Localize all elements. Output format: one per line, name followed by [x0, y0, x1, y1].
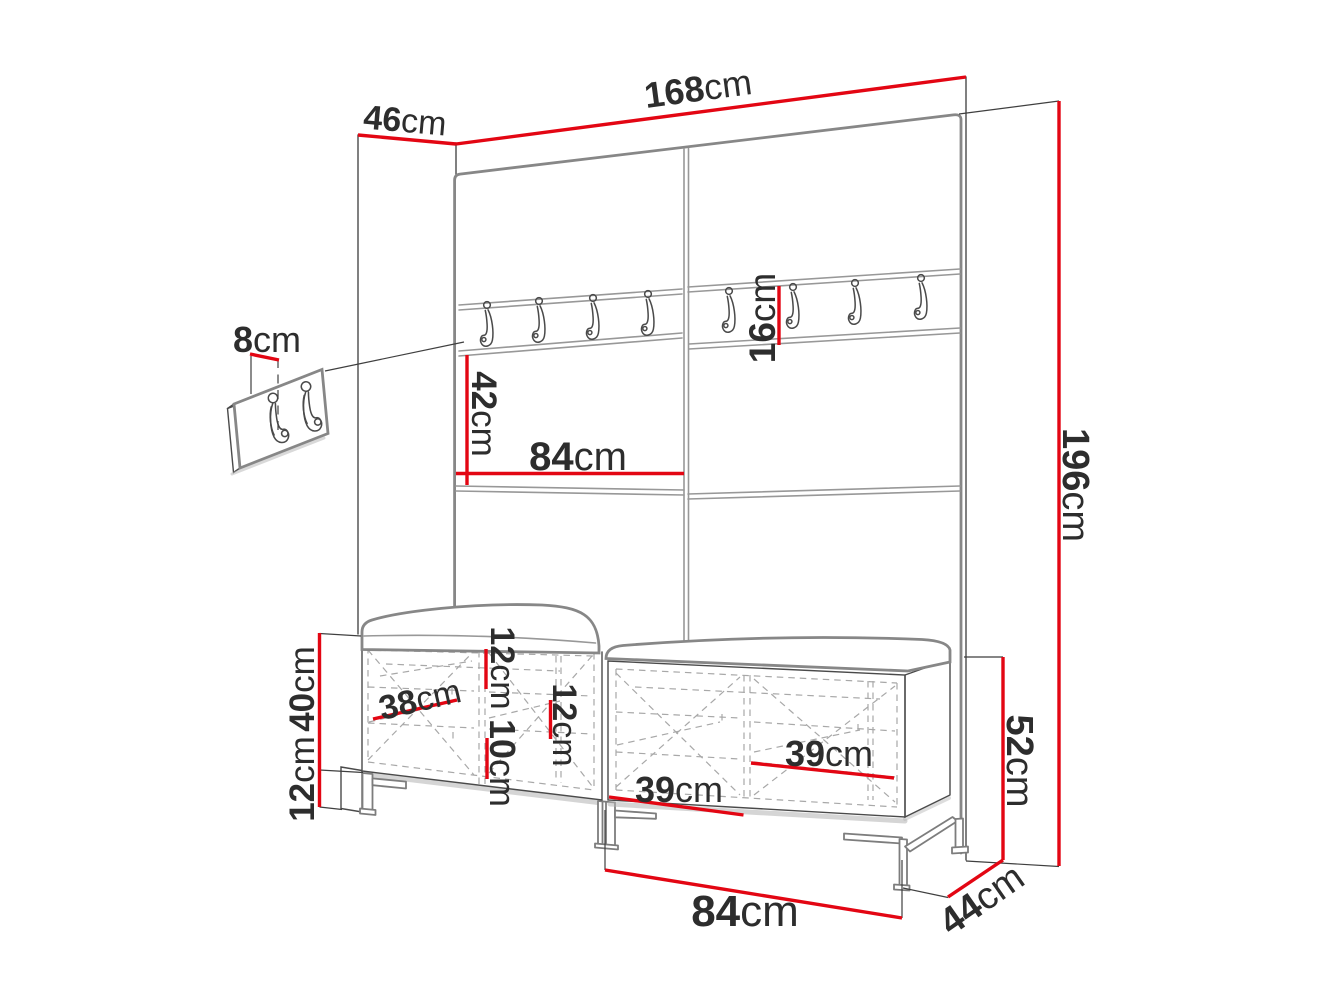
svg-text:52cm: 52cm: [998, 715, 1040, 808]
svg-text:39cm: 39cm: [785, 733, 873, 774]
svg-text:12cm: 12cm: [545, 683, 583, 766]
svg-text:12cm: 12cm: [283, 736, 322, 822]
svg-text:16cm: 16cm: [742, 273, 783, 363]
svg-text:84cm: 84cm: [691, 887, 799, 936]
svg-text:40cm: 40cm: [283, 646, 322, 732]
svg-text:84cm: 84cm: [529, 435, 627, 479]
svg-text:46cm: 46cm: [362, 98, 448, 143]
svg-text:42cm: 42cm: [465, 371, 504, 457]
svg-text:39cm: 39cm: [635, 769, 723, 810]
svg-text:12cm: 12cm: [483, 626, 521, 709]
svg-text:8cm: 8cm: [233, 319, 301, 360]
svg-text:196cm: 196cm: [1054, 428, 1096, 542]
svg-text:10cm: 10cm: [483, 719, 524, 807]
